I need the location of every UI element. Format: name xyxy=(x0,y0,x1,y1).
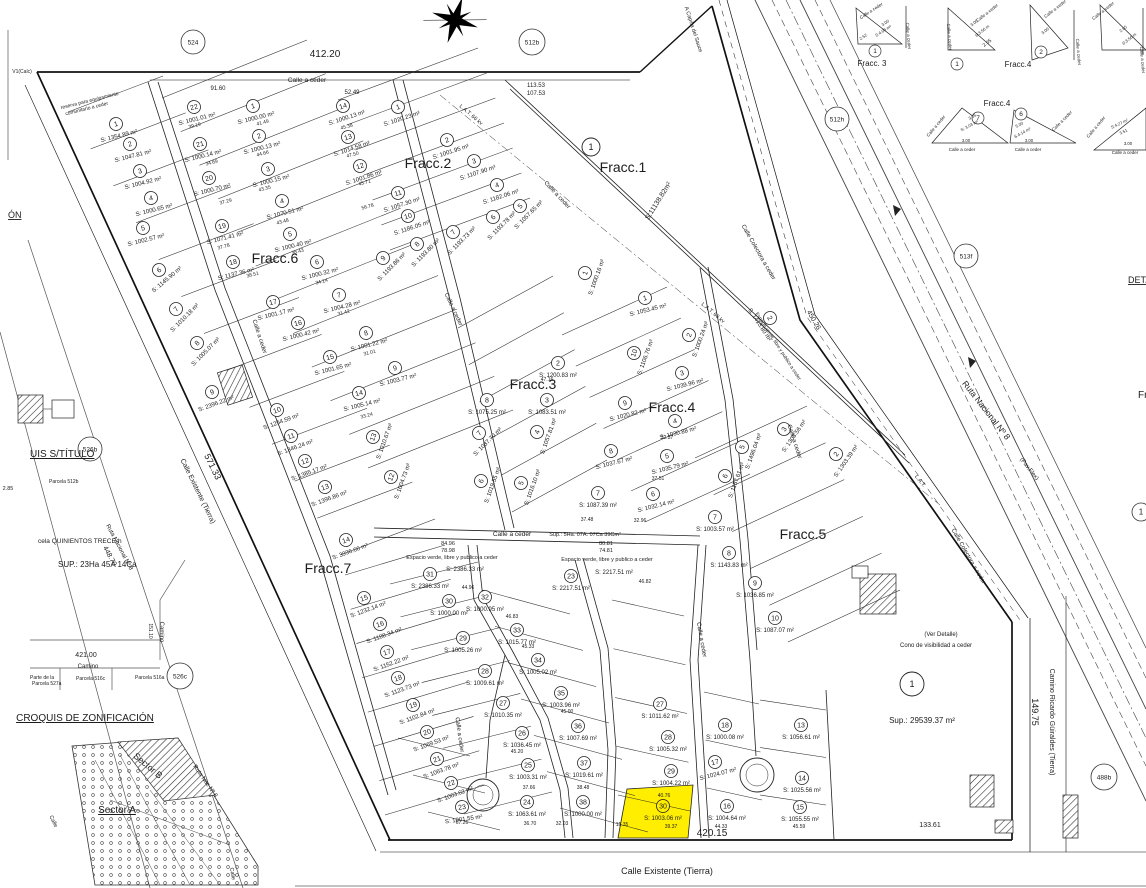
lot-area: S: 1037.67 m² xyxy=(595,456,633,471)
note-label: V1(Calc) xyxy=(12,69,32,75)
lot-line xyxy=(788,590,900,642)
lot-number: 34 xyxy=(534,657,542,664)
lot-area: S: 1000.24 m² xyxy=(692,321,711,358)
lot-number: 30 xyxy=(659,803,667,810)
lot-marker: 15S: 1001.65 m² xyxy=(310,346,352,377)
svg-text:1: 1 xyxy=(1139,507,1144,516)
street-label: Calle Colectora a ceder xyxy=(740,224,777,281)
lot-marker: 13S: 1396.86 m² xyxy=(305,474,348,508)
detail-text: 3.00 xyxy=(1124,141,1133,146)
lot-marker: 6S: 1157.61 m² xyxy=(713,456,747,499)
periphery-label: Parcela 527a xyxy=(32,681,62,687)
lot-area: S: 1102.84 m² xyxy=(399,708,436,726)
lot-line xyxy=(614,649,686,665)
lot-marker: 27S: 1010.35 m² xyxy=(484,697,522,720)
lot-line xyxy=(91,113,186,149)
lot-marker: 9S: 1193.86 m² xyxy=(365,240,407,282)
lot-area: S: 1152.22 m² xyxy=(373,655,410,673)
street-label: Calle a ceder xyxy=(493,531,532,538)
lot-marker: 12S: 1385.17 m² xyxy=(285,448,328,482)
lot-marker: 9S: 1003.77 m² xyxy=(375,357,417,388)
dimension-label: 74.81 xyxy=(599,548,613,554)
lot-area: S: 1053.45 m² xyxy=(629,303,667,318)
lot-marker: 7S: 1193.73 m² xyxy=(435,214,477,256)
lot-marker: 2S: 1000.24 m² xyxy=(676,315,710,358)
note-label: Espacio verde, libre y publico a ceder xyxy=(754,311,803,381)
svg-text:6: 6 xyxy=(1019,111,1023,118)
lot-area: S: 3936.66 m² xyxy=(332,543,369,562)
dimension-label: 34.14 xyxy=(315,277,329,286)
lot-line xyxy=(760,795,826,805)
detail-text: Calle a ceder xyxy=(975,2,999,23)
periphery-label: Parcela 516a xyxy=(135,675,165,681)
lot-number: 15 xyxy=(796,804,804,811)
lot-marker: 24S: 1063.61 m² xyxy=(508,796,546,819)
lot-number: 9 xyxy=(753,580,757,587)
periphery-label: cela QUINIENTOS TRECE-h xyxy=(38,538,122,545)
lot-marker: 28S: 1005.32 m² xyxy=(649,731,687,754)
detail-text: Calle a ceder xyxy=(949,147,976,152)
detail-lot-circle: 1 xyxy=(951,58,963,70)
parcel-ref-circle: 512h xyxy=(825,107,849,131)
lot-area: S: 1036.85 m² xyxy=(736,593,774,599)
lot-area: S: 1035.79 m² xyxy=(651,461,689,476)
lot-area: S: 1004.64 m² xyxy=(708,816,746,822)
lot-area: S: 1003.77 m² xyxy=(379,373,417,388)
dimension-label: 78.98 xyxy=(441,548,455,554)
lot-area: S: 1143.83 m² xyxy=(710,563,747,569)
lot-line xyxy=(612,600,684,616)
lot-area: S: 1005.02 m² xyxy=(519,670,557,676)
lot-line xyxy=(576,318,681,366)
street-label: Calle Colectora a ceder xyxy=(950,528,987,585)
lot-marker: 16S: 1188.34 m² xyxy=(360,612,403,646)
subdivision-boundary xyxy=(25,0,1146,886)
zoning-sector-a: Sector A xyxy=(98,805,136,816)
dimension-label: 45.00 xyxy=(561,709,574,715)
lot-marker: 13S: 1010.67 m² xyxy=(360,417,394,460)
detail-text: Calle a ceder xyxy=(1139,46,1146,73)
lot-marker: 11S: 1057.30 m² xyxy=(378,181,421,214)
lot-number: 3 xyxy=(545,397,549,404)
lot-marker: 23S: 2217.51 m² xyxy=(552,570,590,593)
highlighted-lot-30[interactable] xyxy=(618,785,693,838)
periphery-label: SUP.: 23Ha 45A 14Ca xyxy=(58,560,137,569)
lot-number: 36 xyxy=(574,723,582,730)
lot-area: S: 1106.76 m² xyxy=(637,339,655,376)
dimension-label: 421.00 xyxy=(75,652,97,659)
lot-area: S: 1056.61 m² xyxy=(782,735,820,741)
lot-line xyxy=(249,371,344,407)
detail-text: Calle a ceder xyxy=(1015,147,1042,152)
big-parcel-marker: 1 xyxy=(582,138,600,156)
lot-marker: 7S: 1037.70 m² xyxy=(461,415,504,458)
lot-marker: 32S: 1000.95 m² xyxy=(466,591,504,614)
dimension-label: 45.20 xyxy=(511,749,524,755)
detail-text: Calle a ceder xyxy=(1075,38,1082,65)
lot-marker: 3S: 1083.51 m² xyxy=(528,394,566,417)
lot-marker: 8S: 1143.83 m² xyxy=(710,547,747,570)
dimension-label: 32.37 xyxy=(661,435,674,441)
dimension-label: 133.61 xyxy=(919,822,941,829)
lot-marker: 29S: 1004.22 m² xyxy=(652,765,690,788)
lot-area: S: 1010.67 m² xyxy=(376,423,395,460)
fraction-title: Fracc.7 xyxy=(305,560,352,576)
lot-area: S: 1019.55 m² xyxy=(484,467,503,504)
svg-text:1: 1 xyxy=(588,142,593,152)
lot-area: S: 1083.51 m² xyxy=(528,410,566,416)
text-labels-layer: Fracc.1Fracc.2Fracc.3Fracc.4Fracc.5Fracc… xyxy=(3,0,1146,839)
periphery-label: ÓN xyxy=(8,210,22,220)
lot-marker: 27S: 1011.62 m² xyxy=(641,698,678,721)
dimension-label: 56.78 xyxy=(361,202,375,211)
lot-marker: 2S: 1303.39 m² xyxy=(820,435,860,479)
lot-marker: 3S: 1039.96 m² xyxy=(662,362,704,393)
lot-area: S: 1004.92 m² xyxy=(124,176,162,191)
street-label: Calle a ceder xyxy=(251,319,268,354)
lot-area: S: 1000.08 m² xyxy=(706,735,744,741)
lot-marker: 9S: 1036.85 m² xyxy=(736,577,774,600)
dimension-label: 32.03 xyxy=(556,821,569,827)
dimension-label: 37.66 xyxy=(523,785,536,791)
street-calle-existente-bottom: Calle Existente (Tierra) xyxy=(621,866,713,876)
dimension-label: 113.53 xyxy=(527,83,546,89)
dimension-label: 149.75 xyxy=(1030,698,1040,726)
lot-marker: 12S: 1004.73 m² xyxy=(378,457,412,500)
lot-area: S: 2217.51 m² xyxy=(552,586,590,592)
lot-area: S: 1005.26 m² xyxy=(444,648,482,654)
note-label: Espacio verde, libre y publico a ceder xyxy=(561,557,653,563)
dimension-label: 45.33 xyxy=(522,644,535,650)
note-label: S: 2386.33 m² xyxy=(446,567,484,573)
lots-layer: 1S: 1354.89 m²2S: 1047.81 m²3S: 1004.92 … xyxy=(78,29,1146,825)
corner-detail-triangles xyxy=(856,5,1146,150)
lot-area: S: 1007.69 m² xyxy=(559,736,597,742)
detail-text: 2.65 xyxy=(1118,24,1128,33)
dimension-label: 52.49 xyxy=(344,90,360,96)
lot-number: 33 xyxy=(513,627,521,634)
lot-area: S: 1003.57 m² xyxy=(696,527,734,533)
dimension-label: 412.20 xyxy=(310,49,341,60)
lot-area: S: 1032.14 m² xyxy=(637,499,675,514)
lot-area: S: 1075.25 m² xyxy=(468,410,506,416)
lot-marker: 7S: 1003.57 m² xyxy=(696,511,734,534)
lot-marker: 18S: 1123.73 m² xyxy=(378,666,421,700)
lot-area: S: 1004.22 m² xyxy=(652,781,690,787)
lot-line xyxy=(751,516,863,568)
lot-marker: 36S: 1007.69 m² xyxy=(559,720,597,743)
lot-number: 26 xyxy=(518,730,526,737)
dimension-label: 67.26 xyxy=(456,820,469,826)
lot-line xyxy=(615,698,687,714)
dimension-label: 107.53 xyxy=(527,91,546,97)
dimension-label: 45.59 xyxy=(793,824,806,830)
detail-fraction-label: Fracc.4 xyxy=(984,99,1011,108)
dimension-label: 151.10 xyxy=(147,623,153,639)
zoning-sketch: Sector B Sector A Ruta Nac Nº 8 Calle Ca… xyxy=(48,738,258,885)
detail-lot-circle: 2 xyxy=(1035,46,1047,58)
lot-line xyxy=(355,98,495,150)
periphery-label: UIS S/TÍTULO xyxy=(30,447,95,460)
detail-fraction-label: Fracc.4 xyxy=(1005,60,1032,69)
lot-marker: 13S: 1056.61 m² xyxy=(782,719,820,742)
lot-number: 23 xyxy=(567,573,575,580)
lot-marker: 6S: 1032.14 m² xyxy=(633,483,675,514)
lot-number: 32 xyxy=(481,594,489,601)
lot-area: S: 1047.81 m² xyxy=(114,149,152,164)
lot-marker: 26S: 1036.45 m² xyxy=(503,727,541,750)
detail-text: Calle a ceder xyxy=(1051,109,1074,132)
lot-area: S: 1057.30 m² xyxy=(383,197,421,214)
lot-area: S: 1005.14 m² xyxy=(343,398,381,413)
detail-lot-circle: 6 xyxy=(1015,108,1027,120)
lot-marker: 7S: 1087.39 m² xyxy=(579,487,617,510)
parcel-ref-circle: 524 xyxy=(181,30,205,54)
lot-marker: 5S: 1035.79 m² xyxy=(647,445,689,476)
lot-marker: 14S: 1000.13 m² xyxy=(323,94,366,127)
parcel-ref-circle: 526c xyxy=(167,663,193,689)
lot-marker: 16S: 1004.64 m² xyxy=(708,800,746,823)
lot-area: S: 1001.65 m² xyxy=(314,362,352,377)
lot-number: 13 xyxy=(797,722,805,729)
dimension-label: 450.26 xyxy=(805,309,822,331)
lot-marker: 7S: 1010.18 m² xyxy=(158,291,201,334)
lot-area: S: 1000.00 m² xyxy=(564,812,602,818)
lot-marker: 3S: 1107.90 m² xyxy=(454,149,496,182)
dimension-label: 39.37 xyxy=(665,824,678,830)
lot-number: 30 xyxy=(445,598,453,605)
lot-marker: 4S: 1057.81 m² xyxy=(524,412,558,455)
lot-line xyxy=(411,628,499,650)
lot-number: 7 xyxy=(596,490,600,497)
lot-number: 18 xyxy=(721,722,729,729)
dimension-label: 40.76 xyxy=(658,793,671,799)
dimension-label: 45.38 xyxy=(340,122,354,131)
dimension-label: 15.35 xyxy=(616,822,629,828)
lot-area: S: 1063.61 m² xyxy=(508,812,546,818)
periphery-label: Parcela 512b xyxy=(49,479,79,485)
dimension-label: 31.01 xyxy=(363,348,377,357)
periphery-label: Parcela 516c xyxy=(76,676,106,682)
detail-text: 3.00 xyxy=(1040,26,1050,35)
lot-area: S: 1000.95 m² xyxy=(466,607,504,613)
lot-area: S: 1188.34 m² xyxy=(366,627,403,645)
lot-line xyxy=(760,700,826,710)
lot-number: 14 xyxy=(798,775,806,782)
lot-marker: 15S: 1055.55 m² xyxy=(781,801,819,824)
lot-line xyxy=(704,692,759,704)
dimension-label: 32.96 xyxy=(634,518,647,524)
lot-number: 37 xyxy=(580,760,588,767)
fraction-title: Fracc.5 xyxy=(780,526,827,542)
svg-text:524: 524 xyxy=(188,39,199,46)
lot-area: S: 1000.16 m² xyxy=(588,259,607,296)
lot-area: S: 1010.35 m² xyxy=(484,713,522,719)
parcel-ref-circle: 513f xyxy=(954,244,978,268)
lot-marker: 25S: 1003.31 m² xyxy=(509,759,547,782)
lot-line xyxy=(732,480,844,532)
lot-line xyxy=(458,276,553,328)
dimension-label: 37.78 xyxy=(217,242,231,251)
dimension-label: 34.69 xyxy=(205,158,219,167)
street-label: (Pav.Flex) xyxy=(1018,457,1039,482)
detail-text: 2.52 xyxy=(858,32,868,41)
lot-area: S: 1057.81 m² xyxy=(540,418,559,455)
detail-text: Calle a ceder xyxy=(1085,115,1106,139)
dimension-label: 91.60 xyxy=(210,86,226,92)
dimension-label: 43.48 xyxy=(276,217,290,226)
lot-area: S: 1004.73 m² xyxy=(394,463,413,500)
lot-marker: 18S: 1000.08 m² xyxy=(706,719,744,742)
lot-marker: 9S: 1020.82 m² xyxy=(605,392,647,423)
lot-marker: 19S: 1102.84 m² xyxy=(393,693,436,727)
note-label: Espacio verde, libre y publico a ceder xyxy=(406,555,498,561)
lot-line xyxy=(422,661,510,683)
lot-area: S: 2386.33 m² xyxy=(411,584,449,590)
lot-number: 28 xyxy=(481,668,489,675)
detail-lot-circle: 1 xyxy=(869,45,881,57)
street-label: Calle a ceder xyxy=(288,77,327,84)
fraction-title: Fracc.1 xyxy=(600,159,647,175)
lot-marker: 16S: 1000.42 m² xyxy=(278,312,320,343)
lot-marker: 14S: 1025.56 m² xyxy=(783,772,821,795)
lot-number: 16 xyxy=(723,803,731,810)
lot-marker: 4S: 1000.65 m² xyxy=(131,187,173,218)
lot-number: 8 xyxy=(485,397,489,404)
detail-text: S:3.56 m xyxy=(974,23,991,38)
lot-line xyxy=(469,313,564,365)
svg-text:512b: 512b xyxy=(525,39,540,46)
lot-area: S: 1003.31 m² xyxy=(509,775,547,781)
note-label: S: 2217.51 m² xyxy=(595,570,633,576)
lot-number: 38 xyxy=(579,799,587,806)
big-parcel-marker: 1 xyxy=(900,672,924,696)
dimension-label: 47.16 xyxy=(541,377,554,383)
note-label: Sup.: 29539.37 m² xyxy=(889,716,955,725)
lot-area: S: 1496.04 m² xyxy=(745,433,764,470)
dimension-label: 44.96 xyxy=(462,585,475,591)
note-label: (Ver Detalle) xyxy=(924,632,957,638)
lot-number: 24 xyxy=(523,799,531,806)
note-label: Cono de visibilidad a ceder xyxy=(900,643,972,649)
compass-rose-icon xyxy=(419,0,491,52)
dimension-label: 33.24 xyxy=(360,411,374,420)
note-label: Sup.: 5Ha. 07A. 07Ca 39Cm² xyxy=(549,532,621,538)
detail-text: 5.00 xyxy=(1015,120,1025,129)
detail-text: Calle a ceder xyxy=(859,1,884,20)
svg-text:526c: 526c xyxy=(173,673,188,680)
lot-line xyxy=(760,748,826,758)
periphery-label: Fracc. xyxy=(1138,390,1146,401)
street-camino-guiraldes: Camino Ricardo Güiraldes (Tierra) xyxy=(1048,669,1055,776)
street-label: L.A.T. xyxy=(913,474,927,489)
note-label: S:11138.82m² xyxy=(644,181,673,222)
lot-line xyxy=(495,626,583,650)
lot-marker: 1S: 1053.45 m² xyxy=(625,287,667,318)
detail-text: Calle a ceder xyxy=(1112,150,1139,155)
lot-area: S: 1002.57 m² xyxy=(127,233,165,248)
lot-marker: 5S: 1496.04 m² xyxy=(729,427,763,470)
lot-marker: 17S: 1152.22 m² xyxy=(367,640,410,674)
lot-marker: 6S: 1000.32 m² xyxy=(297,251,339,282)
parcel-ref-circle: 1 xyxy=(1132,503,1146,521)
street-label: Camino xyxy=(158,622,164,643)
lot-area: S: 1069.53 m² xyxy=(413,735,450,754)
dimension-label: 46.82 xyxy=(639,579,652,585)
dimension-label: 2.85 xyxy=(3,486,14,492)
dimension-label: 38.48 xyxy=(577,785,590,791)
lot-marker: 14S: 3936.66 m² xyxy=(326,527,369,561)
lot-area: S: 1039.96 m² xyxy=(666,378,704,393)
lot-number: 31 xyxy=(426,571,434,578)
periphery-label: DETALLE xyxy=(1128,275,1146,285)
dimension-label: 46.83 xyxy=(506,614,519,620)
lot-area: S: 1020.82 m² xyxy=(609,408,647,423)
lot-number: 35 xyxy=(557,690,565,697)
lot-area: S: 1396.86 m² xyxy=(311,490,348,509)
lot-marker: 15S: 1232.14 m² xyxy=(344,585,387,619)
lot-marker: 6S: 1193.78 m² xyxy=(475,199,517,241)
dimension-label: 36.70 xyxy=(524,821,537,827)
lot-area: S: 1009.61 m² xyxy=(466,681,504,687)
street-label: Calle a ceder xyxy=(542,180,571,210)
lot-marker: 1S: 1000.00 m² xyxy=(233,95,275,126)
lot-number: 8 xyxy=(727,550,731,557)
svg-text:513f: 513f xyxy=(960,253,973,260)
lot-area: S: 1003.06 m² xyxy=(644,816,682,822)
lot-area: S: 1011.62 m² xyxy=(641,714,678,720)
lot-marker: 21S: 1063.78 m² xyxy=(417,746,460,780)
lot-number: 7 xyxy=(713,514,717,521)
fraction-title: Fracc.4 xyxy=(649,399,696,415)
lot-marker: 34S: 1005.02 m² xyxy=(519,654,557,677)
lot-number: 25 xyxy=(524,762,532,769)
lot-marker: 2S: 1413.80 m² xyxy=(746,299,785,343)
lot-area: S: 1087.39 m² xyxy=(579,503,617,509)
lot-area: S: 1385.17 m² xyxy=(291,464,328,483)
detail-text: Calle a ceder xyxy=(925,114,946,138)
lot-number: 27 xyxy=(656,701,664,708)
lot-marker: 8S: 1005.07 m² xyxy=(179,325,222,368)
street-label: Calle a ceder xyxy=(454,717,465,753)
lot-area: S: 1107.90 m² xyxy=(459,165,496,182)
dimension-label: 84.96 xyxy=(441,541,455,547)
svg-text:1: 1 xyxy=(873,48,877,55)
lot-area: S: 1025.56 m² xyxy=(783,788,821,794)
dimension-label: 571.33 xyxy=(202,452,223,481)
lot-marker: 29S: 1005.26 m² xyxy=(444,632,482,655)
lot-marker: 8S: 1001.22 m² xyxy=(346,322,388,353)
svg-text:2: 2 xyxy=(1039,49,1043,56)
detail-text: 3.00 xyxy=(962,138,971,143)
svg-text:512h: 512h xyxy=(830,116,845,123)
lot-marker: 28S: 1009.61 m² xyxy=(466,665,504,688)
lot-marker: 4S: 1182.06 m² xyxy=(477,173,519,206)
lot-line xyxy=(706,740,761,752)
lot-area: S: 1005.32 m² xyxy=(649,747,687,753)
lot-marker: 10S: 1087.07 m² xyxy=(756,612,794,635)
lot-number: 10 xyxy=(771,615,779,622)
dimension-label: 37.51 xyxy=(652,476,665,482)
lot-area: S: 1254.59 m² xyxy=(263,413,300,432)
lot-area: S: 1123.73 m² xyxy=(384,681,421,699)
dimension-label: 37.29 xyxy=(219,197,233,206)
lot-area: S: 1157.61 m² xyxy=(728,462,746,499)
parcel-ref-circle: 488b xyxy=(1091,764,1117,790)
dimension-label: 80.81 xyxy=(599,541,613,547)
lot-marker: 14S: 1005.14 m² xyxy=(339,382,381,413)
lot-number: 2 xyxy=(556,360,560,367)
